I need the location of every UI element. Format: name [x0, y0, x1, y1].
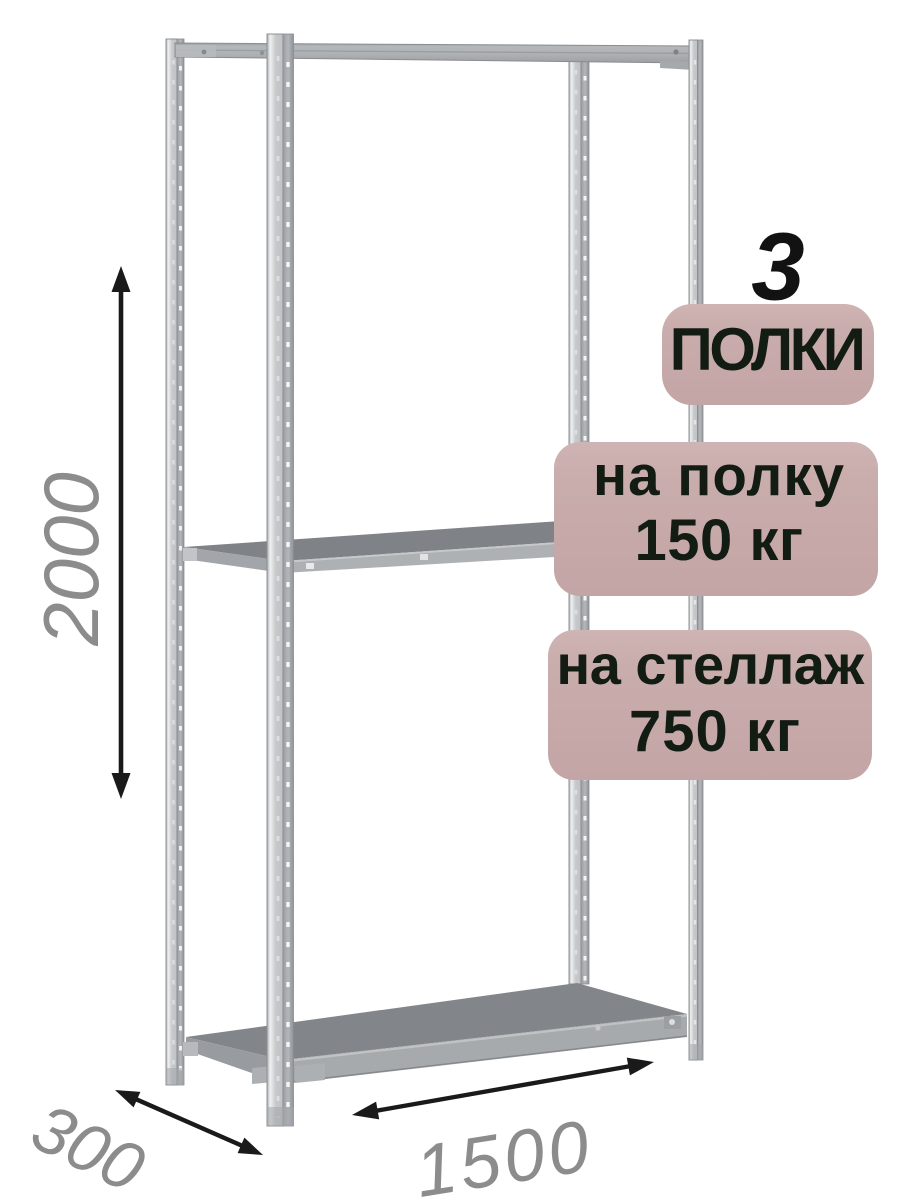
- svg-text:150 кг: 150 кг: [634, 508, 803, 573]
- svg-text:на стеллаж: на стеллаж: [556, 633, 865, 696]
- svg-text:2000: 2000: [27, 472, 115, 647]
- svg-text:на полку: на полку: [593, 444, 845, 507]
- svg-text:750 кг: 750 кг: [629, 699, 801, 764]
- svg-text:ПОЛКИ: ПОЛКИ: [670, 316, 863, 383]
